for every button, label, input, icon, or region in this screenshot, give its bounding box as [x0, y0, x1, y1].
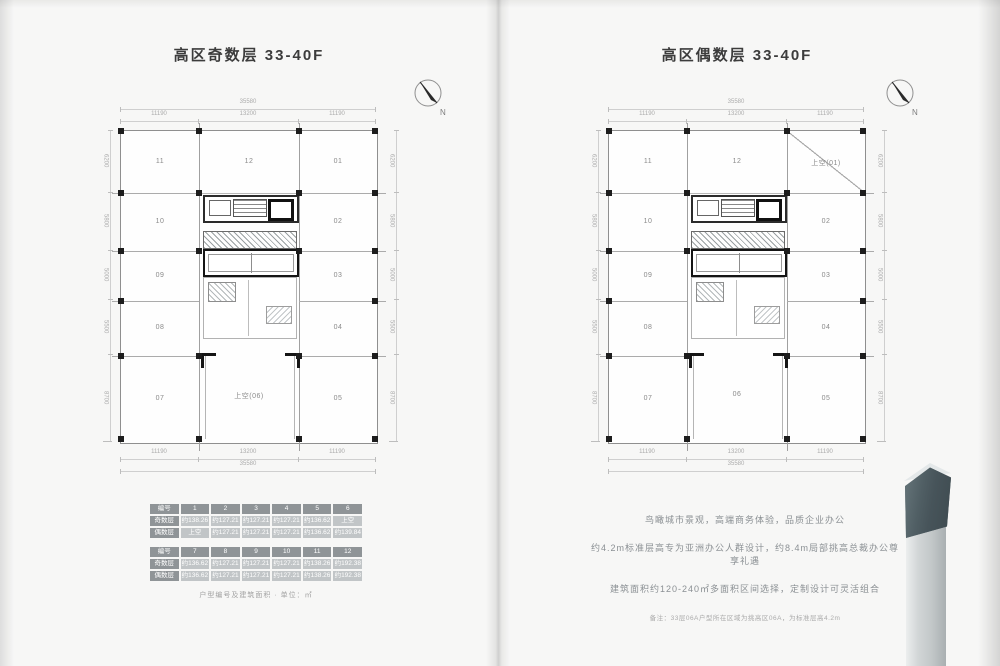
table-header-row: 编号123456: [150, 504, 362, 514]
dimension-line-bottom: 11190 13200 11190 35580: [120, 448, 376, 472]
table-header-row: 编号789101112: [150, 547, 362, 557]
room-label-05: 05: [801, 395, 851, 402]
restroom-core: [203, 277, 297, 339]
restroom-hatch: [208, 282, 236, 302]
table-cell: 约127.21: [211, 571, 240, 581]
structural-column: [606, 190, 612, 196]
partition-wall: [600, 356, 687, 357]
dim-total: 35580: [120, 460, 376, 472]
room-label-12: 12: [224, 158, 274, 165]
room-label-03: 03: [801, 272, 851, 279]
service-shaft: [691, 249, 787, 277]
dim-segment: 11190: [298, 110, 376, 122]
elevator-shaft: [209, 200, 231, 216]
shaft-divider: [739, 253, 740, 273]
dimension-line-left: 6200 5800 5000 5500 8700: [589, 130, 599, 442]
table-header-cell: 11: [303, 547, 332, 557]
dim-total: 35580: [608, 460, 864, 472]
room-label-09: 09: [135, 272, 185, 279]
table-cell: 约138.26: [303, 559, 332, 569]
table-cell: 约138.26: [181, 516, 210, 526]
dim-segment: 8700: [387, 354, 397, 441]
footnote: 备注：33层06A户型所在区域为挑高区06A，为标准层高4.2m: [590, 612, 900, 622]
dim-segment: 11190: [786, 448, 864, 460]
table-row: 偶数层上空约127.21约127.21约127.21约136.62约139.84: [150, 528, 362, 538]
table-cell: 约192.38: [333, 559, 362, 569]
dimension-line-right: 6200 5800 5000 5500 8700: [387, 130, 397, 442]
dim-segment: 8700: [875, 354, 885, 441]
structural-column: [684, 436, 690, 442]
structural-column: [606, 436, 612, 442]
tower-highlight-zone: [901, 466, 951, 538]
restroom-hatch: [754, 306, 780, 324]
table-row: 奇数层约138.26约127.21约127.21约127.21约136.62上空: [150, 516, 362, 526]
structural-column: [118, 248, 124, 254]
stair-core: [691, 231, 785, 249]
structural-column: [784, 190, 790, 196]
dim-segment: 6200: [589, 130, 599, 192]
compass-n-label: N: [440, 108, 446, 117]
table-header-cell: 3: [242, 504, 271, 514]
table-header-cell: 12: [333, 547, 362, 557]
room-label-11: 11: [623, 158, 673, 165]
table-cell: 约136.62: [181, 571, 210, 581]
structural-column: [118, 436, 124, 442]
table-header-cell: 4: [272, 504, 301, 514]
dim-segment: 13200: [686, 110, 786, 122]
structural-column: [118, 298, 124, 304]
table-cell: 约127.21: [242, 559, 271, 569]
table-cell: 约127.21: [272, 528, 301, 538]
wall-bracket: [689, 353, 704, 368]
dim-segment: 5500: [875, 299, 885, 354]
table-cell: 约136.62: [181, 559, 210, 569]
elevator-shaft: [697, 200, 719, 216]
corridor-wall: [299, 123, 300, 451]
structural-column: [296, 436, 302, 442]
structural-column: [196, 128, 202, 134]
dim-segment: 5000: [589, 250, 599, 300]
structural-column: [860, 248, 866, 254]
structural-column: [372, 436, 378, 442]
dim-segment: 11190: [120, 110, 198, 122]
partition-wall: [600, 251, 687, 252]
structural-column: [196, 436, 202, 442]
dim-segment: 13200: [198, 448, 298, 460]
dimension-line-left: 6200 5800 5000 5500 8700: [101, 130, 111, 442]
room-label-10: 10: [135, 218, 185, 225]
dimension-line-bottom: 11190 13200 11190 35580: [608, 448, 864, 472]
structural-column: [860, 436, 866, 442]
dim-segment: 11190: [786, 110, 864, 122]
restroom-hatch: [696, 282, 724, 302]
structural-column: [196, 353, 202, 359]
structural-column: [296, 190, 302, 196]
table-row: 奇数层约136.62约127.21约127.21约127.21约138.26约1…: [150, 559, 362, 569]
table-header-cell: 5: [303, 504, 332, 514]
structural-column: [606, 248, 612, 254]
table-header-cell: 编号: [150, 504, 179, 514]
table-cell: 约127.21: [272, 559, 301, 569]
corridor-wall: [687, 123, 688, 451]
table-cell: 约136.62: [303, 528, 332, 538]
area-table-units-7-12: 编号789101112奇数层约136.62约127.21约127.21约127.…: [150, 547, 362, 581]
elevator-bank: [721, 199, 755, 217]
floor-plan-odd: 35580 11190 13200 11190 6200 5800 5000 5…: [96, 92, 402, 482]
dimension-line-top: 35580 11190 13200 11190: [120, 98, 376, 122]
dim-segment: 6200: [387, 130, 397, 192]
dim-segment: 11190: [608, 448, 686, 460]
structural-column: [372, 190, 378, 196]
table-header-cell: 1: [181, 504, 210, 514]
structural-column: [296, 248, 302, 254]
structural-column: [860, 298, 866, 304]
structural-column: [860, 128, 866, 134]
room-label-10: 10: [623, 218, 673, 225]
room-label-11: 11: [135, 158, 185, 165]
room-label-04: 04: [801, 324, 851, 331]
dim-segment: 11190: [608, 110, 686, 122]
dim-segment: 6200: [101, 130, 111, 192]
dim-total: 35580: [120, 98, 376, 110]
partition-wall: [112, 301, 199, 302]
structural-column: [372, 298, 378, 304]
table-cell: 上空: [181, 528, 210, 538]
dim-segment: 6200: [875, 130, 885, 192]
page-title-odd-floors: 高区奇数层 33-40F: [96, 44, 402, 65]
room-label-08: 08: [135, 324, 185, 331]
marketing-copy: 鸟瞰城市景观，高端商务体验，品质企业办公 约4.2m标准层高专为亚洲办公人群设计…: [590, 513, 900, 610]
structural-column: [196, 190, 202, 196]
dim-segment: 5500: [101, 299, 111, 354]
table-header-cell: 编号: [150, 547, 179, 557]
page-title-even-floors: 高区偶数层 33-40F: [584, 44, 890, 65]
structural-column: [372, 128, 378, 134]
table-cell: 约127.21: [211, 559, 240, 569]
table-cell: 奇数层: [150, 516, 179, 526]
dimension-line-top: 35580 11190 13200 11190: [608, 98, 864, 122]
structural-column: [860, 353, 866, 359]
corridor-wall: [199, 123, 200, 451]
dim-segment: 5500: [387, 299, 397, 354]
restroom-hatch: [266, 306, 292, 324]
structural-column: [684, 190, 690, 196]
dim-segment: 8700: [101, 354, 111, 441]
table-cell: 约127.21: [242, 571, 271, 581]
dim-segment: 5000: [875, 250, 885, 300]
structural-column: [860, 190, 866, 196]
structural-column: [372, 353, 378, 359]
room-label-void-01: 上空(01): [801, 158, 851, 168]
room-label-12: 12: [712, 158, 762, 165]
elevator-shaft: [756, 199, 782, 221]
table-cell: 约127.21: [211, 528, 240, 538]
room-label-04: 04: [313, 324, 363, 331]
room-label-02: 02: [801, 218, 851, 225]
wall-bracket: [201, 353, 216, 368]
structural-column: [118, 353, 124, 359]
table-cell: 约138.26: [303, 571, 332, 581]
page-edge-shadow-left: [0, 0, 14, 666]
structural-column: [296, 353, 302, 359]
service-shaft: [203, 249, 299, 277]
structural-column: [784, 248, 790, 254]
dim-segment: 8700: [589, 354, 599, 441]
marketing-line-1: 鸟瞰城市景观，高端商务体验，品质企业办公: [590, 513, 900, 526]
page-edge-shadow-right: [978, 0, 1000, 666]
structural-column: [118, 128, 124, 134]
structural-column: [606, 353, 612, 359]
structural-column: [606, 128, 612, 134]
room-label-08: 08: [623, 324, 673, 331]
structural-column: [196, 248, 202, 254]
dim-segment: 5800: [589, 192, 599, 250]
elevator-shaft: [268, 199, 294, 221]
room-label-07: 07: [623, 395, 673, 402]
stair-core: [203, 231, 297, 249]
dim-segment: 13200: [686, 448, 786, 460]
elevator-lobby: [691, 195, 787, 223]
room-label-09: 09: [623, 272, 673, 279]
room-label-05: 05: [313, 395, 363, 402]
table-cell: 约192.38: [333, 571, 362, 581]
room-label-02: 02: [313, 218, 363, 225]
dim-segment: 11190: [298, 448, 376, 460]
structural-column: [684, 128, 690, 134]
elevator-bank: [233, 199, 267, 217]
table-row: 偶数层约136.62约127.21约127.21约127.21约138.26约1…: [150, 571, 362, 581]
table-cell: 奇数层: [150, 559, 179, 569]
table-cell: 约127.21: [211, 516, 240, 526]
structural-column: [118, 190, 124, 196]
table-cell: 偶数层: [150, 571, 179, 581]
table-cell: 约127.21: [242, 528, 271, 538]
table-header-cell: 6: [333, 504, 362, 514]
structural-column: [684, 248, 690, 254]
structural-column: [684, 353, 690, 359]
structural-column: [296, 128, 302, 134]
partition-wall: [600, 301, 687, 302]
dim-segment: 5800: [387, 192, 397, 250]
table-caption: 户型编号及建筑面积 · 单位：㎡: [150, 590, 362, 600]
partition-wall: [199, 193, 299, 194]
book-gutter-shadow: [486, 0, 510, 666]
partition-wall: [112, 193, 199, 194]
dim-segment: 13200: [198, 110, 298, 122]
area-tables: 编号123456奇数层约138.26约127.21约127.21约127.21约…: [150, 504, 362, 600]
partition-wall: [600, 193, 687, 194]
structural-column: [372, 248, 378, 254]
structural-column: [784, 436, 790, 442]
structural-column: [784, 128, 790, 134]
dimension-line-right: 6200 5800 5000 5500 8700: [875, 130, 885, 442]
dim-segment: 11190: [120, 448, 198, 460]
elevator-lobby: [203, 195, 299, 223]
table-cell: 约127.21: [272, 516, 301, 526]
table-cell: 约127.21: [272, 571, 301, 581]
marketing-line-3: 建筑面积约120-240㎡多面积区间选择，定制设计可灵活组合: [590, 582, 900, 595]
compass-n-label: N: [912, 108, 918, 117]
table-cell: 上空: [333, 516, 362, 526]
dim-segment: 5800: [101, 192, 111, 250]
room-label-06: 06: [712, 391, 762, 398]
table-cell: 约127.21: [242, 516, 271, 526]
table-cell: 偶数层: [150, 528, 179, 538]
tower-graphic: [901, 466, 951, 666]
table-cell: 约136.62: [303, 516, 332, 526]
partition-wall: [112, 251, 199, 252]
restroom-divider: [248, 280, 249, 336]
table-header-cell: 8: [211, 547, 240, 557]
marketing-line-2: 约4.2m标准层高专为亚洲办公人群设计，约8.4m局部挑高总裁办公尊享礼遇: [590, 541, 900, 567]
restroom-core: [691, 277, 785, 339]
table-header-cell: 2: [211, 504, 240, 514]
dim-segment: 5500: [589, 299, 599, 354]
compass-icon: N: [410, 76, 450, 122]
table-header-cell: 7: [181, 547, 210, 557]
plan-outline: 11 12 01 10 02 09 03 08 04 07 上空(06) 05: [120, 130, 378, 444]
plan-outline: 11 12 上空(01) 10 02 09 03 08 04 07 06 05: [608, 130, 866, 444]
table-cell: 约139.84: [333, 528, 362, 538]
partition-wall: [112, 356, 199, 357]
restroom-divider: [736, 280, 737, 336]
shaft-divider: [251, 253, 252, 273]
structural-column: [784, 353, 790, 359]
table-header-cell: 9: [242, 547, 271, 557]
dim-segment: 5800: [875, 192, 885, 250]
partition-wall: [687, 193, 787, 194]
room-label-void-06: 上空(06): [224, 391, 274, 401]
table-header-cell: 10: [272, 547, 301, 557]
structural-column: [606, 298, 612, 304]
room-label-01: 01: [313, 158, 363, 165]
dim-total: 35580: [608, 98, 864, 110]
room-label-07: 07: [135, 395, 185, 402]
area-table-units-1-6: 编号123456奇数层约138.26约127.21约127.21约127.21约…: [150, 504, 362, 538]
dim-segment: 5000: [101, 250, 111, 300]
room-label-03: 03: [313, 272, 363, 279]
floor-plan-even: 35580 11190 13200 11190 6200 5800 5000 5…: [584, 92, 890, 482]
dim-segment: 5000: [387, 250, 397, 300]
